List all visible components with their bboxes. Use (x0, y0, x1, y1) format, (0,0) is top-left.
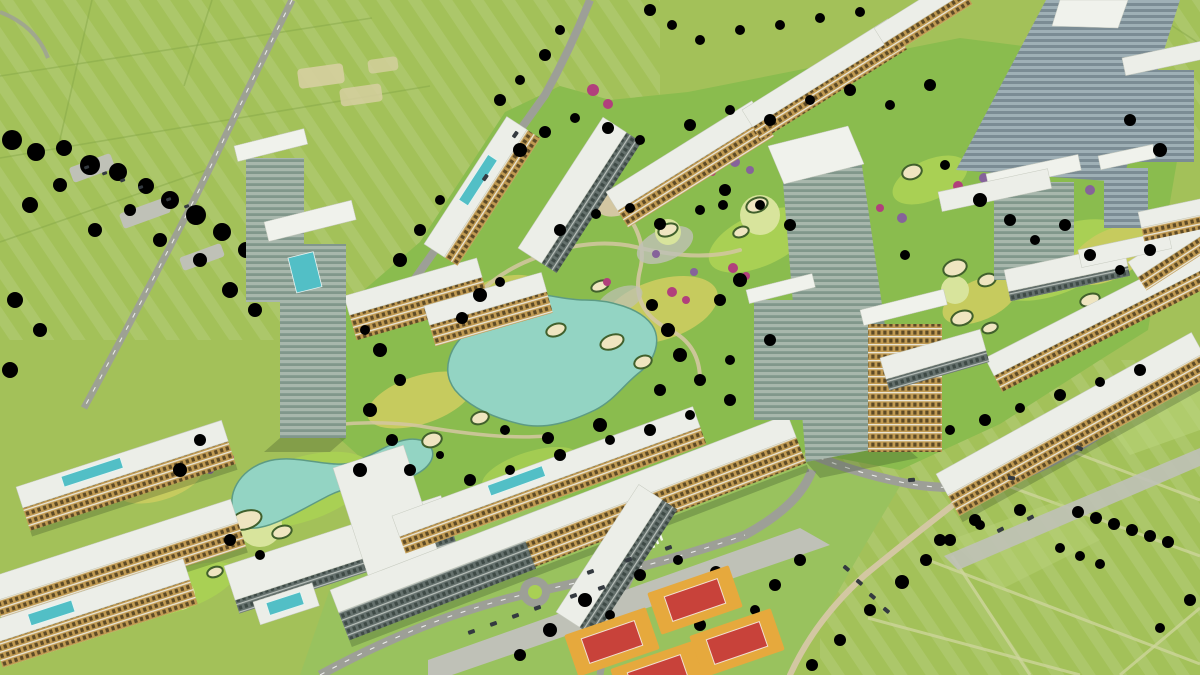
tower-ne-cap (1052, 0, 1128, 28)
aerial-rendering: Aerial architect's rendering of a golf-c… (0, 0, 1200, 675)
township-scene (0, 0, 1200, 675)
roundabout (520, 577, 550, 607)
